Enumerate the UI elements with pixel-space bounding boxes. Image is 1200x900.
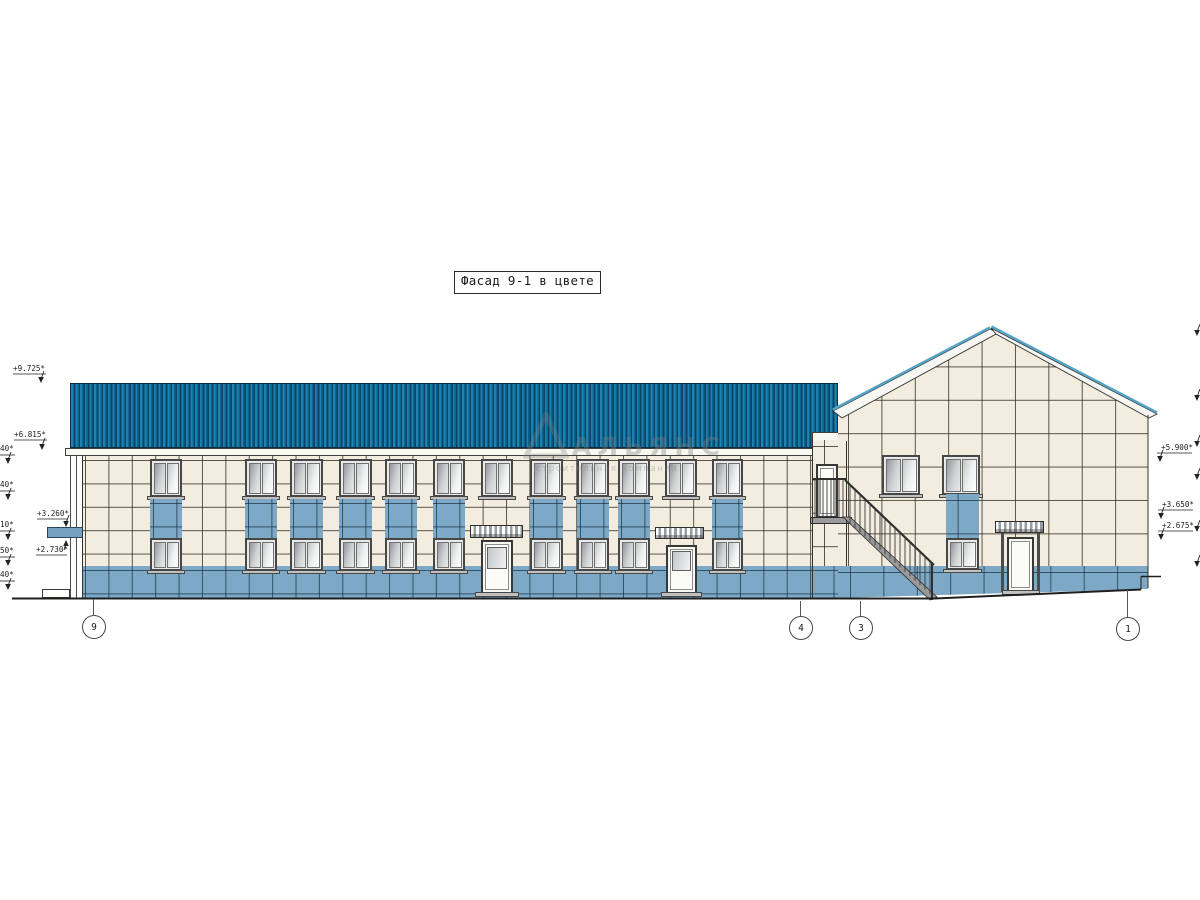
window-sash [343,463,356,494]
window-sash [294,463,307,494]
window-sash [262,463,274,494]
axis-bubble-label: 4 [798,623,804,634]
window-sash [167,463,179,494]
main-fascia [65,448,819,456]
lower-window-sill [709,570,746,574]
window-sash [622,463,634,494]
elevation-mark-clipped [1194,561,1200,567]
elevation-mark-label: +9.725* [13,364,45,373]
elevation-mark-clipped [8,452,11,460]
upper-window [712,459,743,497]
gable-upper-window-sill [879,494,923,498]
window-sash [154,463,166,494]
stair-landing-door [816,464,838,518]
window-sash [581,463,593,494]
window-sash [635,463,647,494]
elevation-mark-clipped [8,554,11,562]
window-sash [389,463,401,494]
upper-window [433,459,465,497]
gable-lower-window [946,538,979,570]
elevation-mark [38,377,44,383]
elevation-mark-clipped [1194,441,1200,447]
window-sash [534,463,547,494]
lower-window-sill [287,570,326,574]
spandrel-panel [618,499,650,538]
lower-window [150,538,182,571]
right-entry-canopy [995,521,1044,533]
window-sash [635,542,647,568]
window-sash [886,459,901,492]
window-sash [498,463,510,494]
lower-window-sill [574,570,612,574]
entrance-door [481,540,513,594]
window-sash [437,463,449,494]
upper-window [290,459,323,497]
window-sash [154,542,166,568]
window-sash [669,463,681,494]
window-sash [389,542,401,568]
lower-window [245,538,277,571]
upper-window [577,459,609,497]
window-sash [307,542,320,568]
lower-window-sill [336,570,375,574]
axis-bubble: 1 [1116,617,1140,641]
spandrel-panel [433,499,465,538]
elevation-mark-clipped-label: 10* [0,520,14,529]
elevation-mark-label: +3.650* [1162,500,1194,509]
elevation-mark-clipped [5,584,11,590]
window-sash [450,463,462,494]
elevation-mark-clipped [1194,474,1200,480]
lower-window [433,538,465,571]
elevation-mark [39,444,45,450]
elevation-mark-clipped-label: 40* [0,480,14,489]
window-sash [294,542,307,568]
main-roof-lower-band [70,433,816,448]
axis-bubble-label: 3 [858,623,864,634]
upper-window [385,459,417,497]
drawing-title: Фасад 9-1 в цвете [454,271,601,294]
axis-bubble: 4 [789,616,813,640]
elevation-mark-clipped-label: 50* [0,546,14,555]
axis-bubble: 3 [849,616,873,640]
upper-window [339,459,372,497]
elevation-mark-clipped-label: 40* [0,444,14,453]
elevation-mark-clipped [8,528,11,536]
window-sash [594,542,606,568]
axis-bubble-label: 9 [91,622,97,633]
window-sash [307,463,320,494]
lower-window [290,538,323,571]
canopy-post [1037,533,1040,592]
gable-wainscot [838,566,1148,598]
lower-window [530,538,563,571]
lower-window-sill [527,570,566,574]
door-glass [487,547,506,569]
door-leaf [820,468,834,514]
entrance-door [666,545,697,594]
window-sash [437,542,449,568]
window-sash [485,463,497,494]
gable-upper-window [942,455,980,495]
door-leaf [1011,541,1030,588]
spandrel-panel [245,499,277,538]
window-sash [547,542,560,568]
gable-lower-window-sill [943,569,982,573]
lower-window [385,538,417,571]
elevation-mark-clipped [8,578,11,586]
lower-window-sill [430,570,468,574]
window-sash [402,542,414,568]
entrance-door-step [475,592,519,597]
window-sash [167,542,179,568]
gable-upper-window [882,455,920,495]
spandrel-panel [150,499,182,538]
upper-window-sill [662,496,700,500]
upper-window [530,459,563,497]
lower-window-sill [382,570,420,574]
lower-window [577,538,609,571]
upper-window [481,459,513,497]
entrance-door-canopy [655,527,704,539]
left-entrance-step [42,589,70,598]
window-sash [249,463,261,494]
stair-landing-slab [810,517,852,524]
elevation-mark-clipped [1194,395,1200,401]
elevation-mark [42,438,45,446]
elevation-mark-clipped [5,494,11,500]
elevation-mark-clipped [8,488,11,496]
elevation-mark-label: +2.675* [1162,521,1194,530]
lower-window-sill [615,570,653,574]
window-sash [356,542,369,568]
right-entry-step [1002,590,1040,595]
entrance-door-canopy [470,525,523,538]
lower-window [618,538,650,571]
window-sash [450,542,462,568]
lower-window-sill [242,570,280,574]
canopy-post [1001,533,1004,592]
window-sash [262,542,274,568]
elevation-mark [1158,534,1164,540]
window-sash [728,463,740,494]
window-sash [343,542,356,568]
window-sash [902,459,917,492]
window-sash [728,542,740,568]
upper-window [150,459,182,497]
spandrel-panel [712,499,743,538]
spandrel-panel [530,499,563,538]
elevation-mark-label: +6.815* [14,430,46,439]
window-sash [547,463,560,494]
right-entry-door [1007,537,1034,592]
elevation-mark-label: +2.730* [36,545,68,554]
elevation-mark [1158,513,1164,519]
window-sash [249,542,261,568]
elevation-mark-label: +5.900* [1161,443,1193,452]
window-sash [962,459,977,492]
upper-window [665,459,697,497]
spandrel-panel [577,499,609,538]
lower-window [339,538,372,571]
elevation-mark-clipped [1194,330,1200,336]
window-sash [963,542,976,567]
drawing-title-text: Фасад 9-1 в цвете [461,273,594,288]
window-sash [946,459,961,492]
window-sash [402,463,414,494]
spandrel-panel [385,499,417,538]
window-sash [622,542,634,568]
spandrel-panel [290,499,323,538]
window-sash [682,463,694,494]
left-entrance-canopy [47,527,83,538]
elevation-mark-clipped [5,458,11,464]
window-sash [594,463,606,494]
window-sash [581,542,593,568]
spandrel-panel [946,494,979,538]
axis-bubble-label: 1 [1125,624,1131,635]
window-sash [716,463,728,494]
elevation-mark-clipped [5,534,11,540]
window-sash [534,542,547,568]
elevation-mark-label: +3.260* [37,509,69,518]
window-sash [716,542,728,568]
elevation-mark-clipped [5,560,11,566]
upper-window [245,459,277,497]
elevation-mark-clipped-label: 40* [0,570,14,579]
elevation-mark [1157,456,1163,462]
door-glass [672,551,690,571]
window-sash [356,463,369,494]
main-roof [70,383,838,433]
lower-window [712,538,743,571]
spandrel-panel [339,499,372,538]
entrance-door-step [661,592,702,597]
upper-window-sill [478,496,516,500]
window-sash [950,542,963,567]
lower-window-sill [147,570,185,574]
facade-drawing: Фасад 9-1 в цвете [0,0,1200,900]
axis-bubble: 9 [82,615,106,639]
upper-window [618,459,650,497]
elevation-mark-clipped [1194,526,1200,532]
